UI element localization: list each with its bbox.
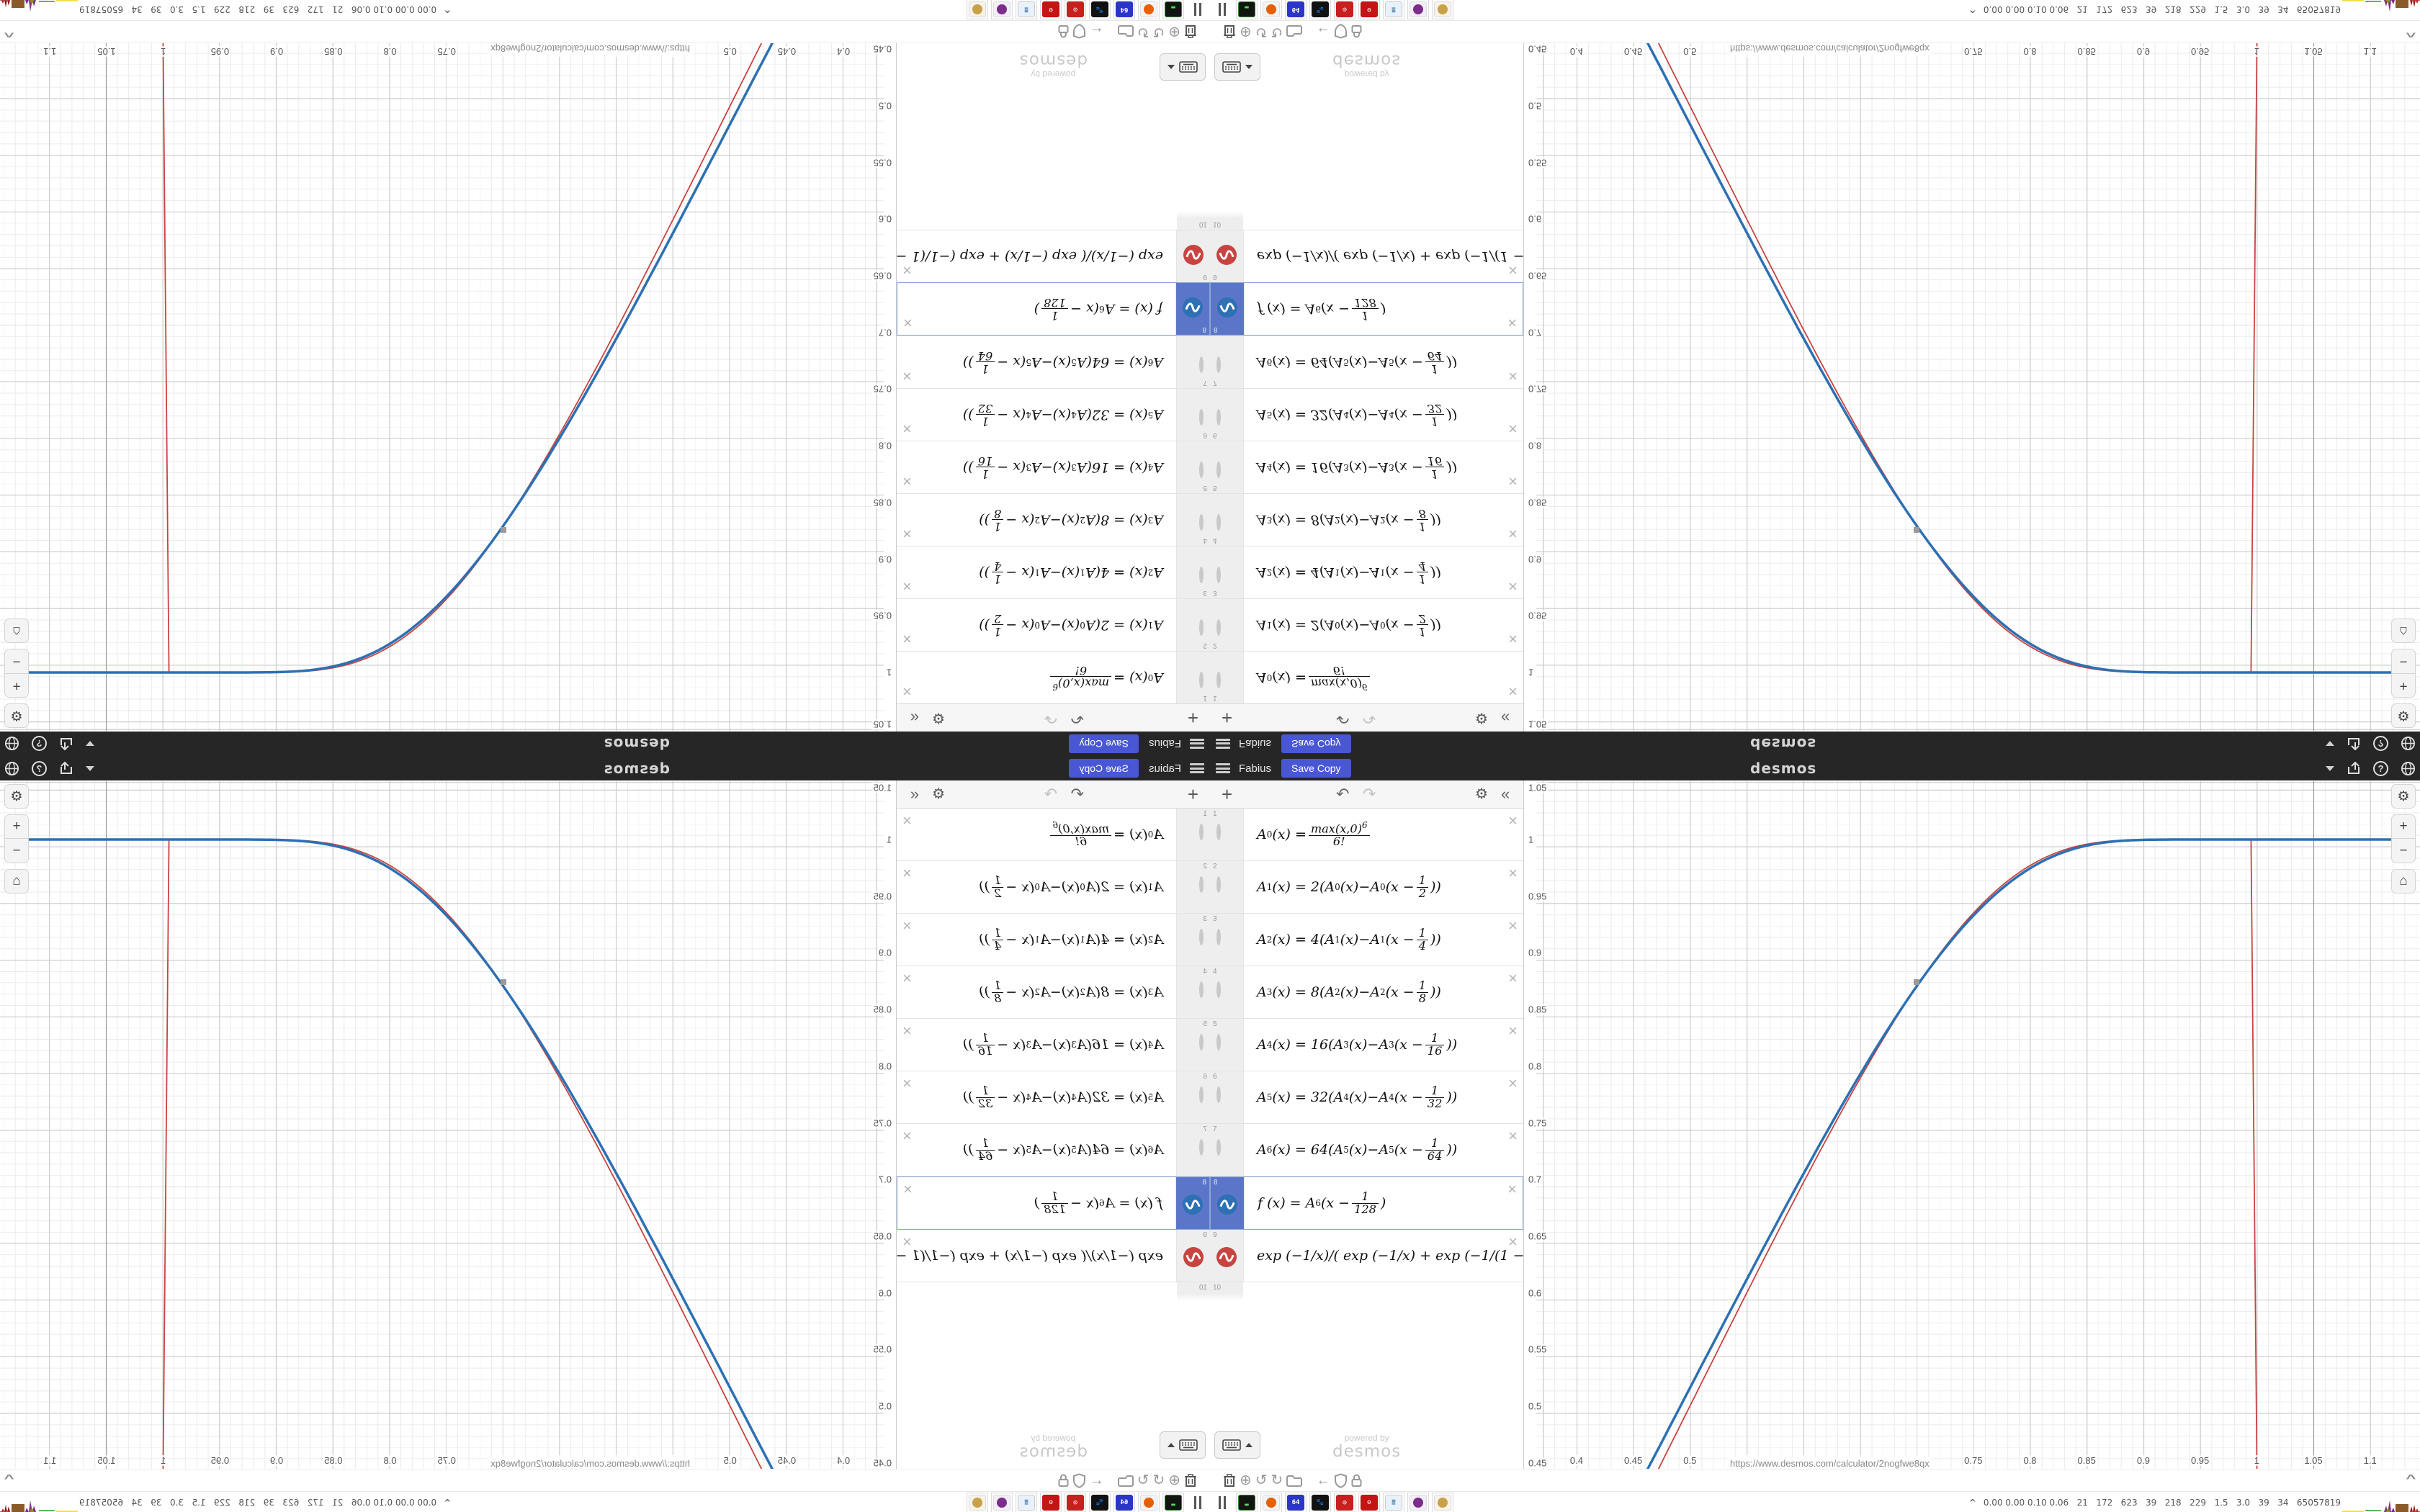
- globe-tray-icon[interactable]: ⊕: [1240, 1473, 1252, 1488]
- hidden-plot-circle-icon[interactable]: [1183, 666, 1204, 686]
- refresh-icon[interactable]: ↺: [1152, 24, 1165, 39]
- expression-gutter[interactable]: 7: [1210, 1124, 1244, 1176]
- save-copy-button[interactable]: Save Copy: [1069, 734, 1138, 753]
- hidden-plot-circle-icon[interactable]: [1183, 826, 1204, 846]
- expression-latex[interactable]: A6(x) = 64(A5(x)−A5(x − 164)): [1244, 1124, 1523, 1176]
- hidden-plot-circle-icon[interactable]: [1183, 508, 1204, 528]
- delete-expression-icon[interactable]: ×: [1508, 473, 1518, 489]
- delete-expression-icon[interactable]: ×: [902, 813, 912, 829]
- refresh-icon[interactable]: ↺: [1255, 24, 1268, 39]
- expression-latex[interactable]: A2(x) = 4(A1(x)−A1(x − 14)): [1244, 914, 1523, 966]
- app-icon-owl[interactable]: [1407, 1493, 1429, 1512]
- expression-latex[interactable]: f (x) = A6(x − 1128): [897, 283, 1175, 335]
- expression-gutter[interactable]: 4: [1176, 494, 1210, 546]
- expression-row[interactable]: 6A5(x) = 32(A4(x)−A4(x − 132))×: [1210, 1071, 1523, 1124]
- zoom-in-button[interactable]: +: [2391, 673, 2416, 698]
- app-icon-owl[interactable]: [1407, 0, 1429, 19]
- expression-latex[interactable]: A1(x) = 2(A0(x)−A0(x − 12)): [897, 599, 1176, 651]
- delete-expression-icon[interactable]: ×: [902, 262, 912, 278]
- expression-latex[interactable]: A0(x) = max(x,0)66!: [1244, 809, 1523, 860]
- expression-latex[interactable]: A5(x) = 32(A4(x)−A4(x − 132)): [897, 1071, 1176, 1123]
- zoom-in-button[interactable]: +: [4, 814, 29, 839]
- intersection-point[interactable]: [1914, 979, 1919, 985]
- undo-button[interactable]: ↶: [1336, 786, 1349, 802]
- collapse-panel-button[interactable]: «: [910, 710, 919, 726]
- expression-row[interactable]: 1A0(x) = max(x,0)66!×: [897, 651, 1210, 703]
- curve-exp-smoothstep[interactable]: [163, 43, 843, 672]
- expression-row[interactable]: 3A2(x) = 4(A1(x)−A1(x − 14))×: [897, 914, 1210, 966]
- app-icon-red-gear[interactable]: ⚙: [1040, 0, 1062, 19]
- delete-expression-icon[interactable]: ×: [1508, 526, 1518, 541]
- hidden-plot-circle-icon[interactable]: [1183, 1141, 1204, 1161]
- menu-icon[interactable]: [1190, 763, 1204, 773]
- app-icon-cat[interactable]: 🐾: [1089, 1493, 1111, 1512]
- app-icon-owl[interactable]: [991, 1493, 1013, 1512]
- graph-area[interactable]: 1.0510.950.90.850.80.750.70.650.60.550.5…: [1524, 43, 2420, 732]
- expression-row[interactable]: 3A2(x) = 4(A1(x)−A1(x − 14))×: [1210, 546, 1523, 598]
- expression-latex[interactable]: A1(x) = 2(A0(x)−A0(x − 12)): [1244, 599, 1523, 651]
- redo-button[interactable]: ↷: [1044, 786, 1057, 802]
- delete-expression-icon[interactable]: ×: [1508, 971, 1518, 986]
- hidden-plot-circle-icon[interactable]: [1216, 351, 1237, 371]
- app-icon-terminal[interactable]: ▂: [1236, 1493, 1258, 1512]
- delete-expression-icon[interactable]: ×: [902, 1128, 912, 1144]
- hidden-plot-circle-icon[interactable]: [1216, 403, 1237, 423]
- undo-button[interactable]: ↶: [1071, 786, 1084, 802]
- hidden-plot-circle-icon[interactable]: [1216, 456, 1237, 476]
- expression-row[interactable]: 8f (x) = A6(x − 1128)×: [1210, 1176, 1523, 1230]
- redo-button[interactable]: ↷: [1044, 710, 1057, 726]
- expression-gutter[interactable]: 8: [1211, 283, 1245, 335]
- hidden-plot-circle-icon[interactable]: [1216, 1141, 1237, 1161]
- help-icon[interactable]: ?: [2373, 737, 2388, 752]
- red-wave-icon[interactable]: [1216, 245, 1237, 265]
- save-copy-button[interactable]: Save Copy: [1281, 759, 1350, 778]
- curve-exp-smoothstep[interactable]: [163, 840, 843, 1469]
- delete-expression-icon[interactable]: ×: [1508, 865, 1518, 881]
- expression-row[interactable]: 4A3(x) = 8(A2(x)−A2(x − 18))×: [897, 493, 1210, 546]
- expression-latex[interactable]: A0(x) = max(x,0)66!: [897, 652, 1176, 703]
- hidden-plot-circle-icon[interactable]: [1183, 931, 1204, 951]
- delete-expression-icon[interactable]: ×: [1508, 420, 1518, 436]
- share-icon[interactable]: [58, 736, 74, 752]
- hidden-plot-circle-icon[interactable]: [1216, 931, 1237, 951]
- undo-button[interactable]: ↶: [1336, 710, 1349, 726]
- refresh-icon-2[interactable]: ↻: [1271, 1473, 1283, 1488]
- expression-latex[interactable]: A6(x) = 64(A5(x)−A5(x − 164)): [897, 336, 1176, 388]
- zoom-in-button[interactable]: +: [2391, 814, 2416, 839]
- folder-icon[interactable]: [1118, 26, 1134, 38]
- expression-row[interactable]: 5A4(x) = 16(A3(x)−A3(x − 116))×: [1210, 441, 1523, 493]
- expression-gutter[interactable]: 4: [1210, 966, 1244, 1018]
- app-icon-cat[interactable]: 🐾: [1309, 1493, 1331, 1512]
- folder-icon[interactable]: [1118, 1475, 1134, 1487]
- expression-gutter[interactable]: 8: [1175, 1177, 1209, 1229]
- app-icon-notepad[interactable]: ≣: [1383, 1493, 1404, 1512]
- expression-latex[interactable]: A2(x) = 4(A1(x)−A1(x − 14)): [897, 914, 1176, 966]
- expression-gutter[interactable]: 1: [1210, 809, 1244, 860]
- share-icon[interactable]: [2346, 736, 2362, 752]
- expression-row[interactable]: 10: [1210, 1282, 1523, 1301]
- expression-latex[interactable]: [897, 211, 1177, 230]
- expression-row[interactable]: 2A1(x) = 2(A0(x)−A0(x − 12))×: [1210, 598, 1523, 651]
- add-expression-button[interactable]: +: [1222, 708, 1232, 727]
- graph-settings-wrench-button[interactable]: ⚙: [4, 784, 29, 809]
- share-icon[interactable]: [58, 760, 74, 776]
- expression-row[interactable]: 6A5(x) = 32(A4(x)−A4(x − 132))×: [897, 1071, 1210, 1124]
- app-icon-red-emblem[interactable]: ◎: [1334, 0, 1355, 19]
- redo-button[interactable]: ↷: [1363, 786, 1376, 802]
- expression-latex[interactable]: A6(x) = 64(A5(x)−A5(x − 164)): [1244, 336, 1523, 388]
- refresh-icon-2[interactable]: ↻: [1137, 1473, 1149, 1488]
- chevron-up-icon[interactable]: ^: [2406, 27, 2416, 40]
- refresh-icon[interactable]: ↺: [1255, 1473, 1268, 1488]
- app-icon-red-emblem[interactable]: ◎: [1065, 0, 1086, 19]
- expression-row[interactable]: 2A1(x) = 2(A0(x)−A0(x − 12))×: [897, 861, 1210, 914]
- trash-icon[interactable]: [1184, 24, 1197, 39]
- app-icon-palette[interactable]: [967, 0, 988, 19]
- menu-icon[interactable]: [1190, 739, 1204, 749]
- app-icon-terminal[interactable]: ▂: [1162, 1493, 1184, 1512]
- redo-button[interactable]: ↷: [1363, 710, 1376, 726]
- expression-row[interactable]: 10: [897, 1282, 1210, 1301]
- edit-list-gear-icon[interactable]: ⚙: [1475, 787, 1488, 801]
- delete-expression-icon[interactable]: ×: [1508, 1076, 1518, 1092]
- collapse-panel-button[interactable]: «: [910, 786, 919, 802]
- add-expression-button[interactable]: +: [1188, 785, 1198, 804]
- expression-row[interactable]: 10: [1210, 211, 1523, 230]
- delete-expression-icon[interactable]: ×: [902, 683, 912, 699]
- expression-gutter[interactable]: 3: [1176, 546, 1210, 598]
- app-icon-firefox[interactable]: [1138, 1493, 1160, 1512]
- delete-expression-icon[interactable]: ×: [902, 971, 912, 986]
- expression-gutter[interactable]: 9: [1210, 1230, 1244, 1282]
- expression-latex[interactable]: A4(x) = 16(A3(x)−A3(x − 116)): [897, 1019, 1176, 1071]
- expression-gutter[interactable]: 6: [1176, 389, 1210, 441]
- drag-handle-icon[interactable]: [1219, 1496, 1226, 1509]
- expression-gutter[interactable]: 3: [1176, 914, 1210, 966]
- trash-icon[interactable]: [1223, 24, 1236, 39]
- expression-gutter[interactable]: 8: [1211, 1177, 1245, 1229]
- back-arrow-icon[interactable]: ←: [1316, 24, 1330, 39]
- hidden-plot-circle-icon[interactable]: [1183, 1036, 1204, 1056]
- back-arrow-icon[interactable]: ←: [1316, 1473, 1330, 1488]
- app-icon-notepad[interactable]: ≣: [1016, 0, 1037, 19]
- expression-row[interactable]: 7A6(x) = 64(A5(x)−A5(x − 164))×: [897, 1124, 1210, 1176]
- hidden-plot-circle-icon[interactable]: [1183, 1089, 1204, 1109]
- delete-expression-icon[interactable]: ×: [902, 420, 912, 436]
- delete-expression-icon[interactable]: ×: [902, 1023, 912, 1039]
- back-arrow-icon[interactable]: ←: [1090, 1473, 1104, 1488]
- globe-icon[interactable]: [2400, 760, 2416, 776]
- delete-expression-icon[interactable]: ×: [1508, 368, 1518, 384]
- blue-wave-icon[interactable]: [1183, 297, 1203, 318]
- hidden-plot-circle-icon[interactable]: [1216, 984, 1237, 1004]
- home-button[interactable]: ⌂: [4, 618, 29, 643]
- expression-latex[interactable]: exp (−1/x)/( exp (−1/x) + exp (−1/(1 − x…: [897, 1230, 1176, 1282]
- app-icon-palette[interactable]: [1432, 1493, 1453, 1512]
- home-button[interactable]: ⌂: [4, 869, 29, 894]
- expression-latex[interactable]: A3(x) = 8(A2(x)−A2(x − 18)): [897, 494, 1176, 546]
- app-icon-red-emblem[interactable]: ◎: [1334, 1493, 1355, 1512]
- expression-row[interactable]: 8f (x) = A6(x − 1128)×: [897, 1176, 1210, 1230]
- expression-row[interactable]: 9exp (−1/x)/( exp (−1/x) + exp (−1/(1 − …: [1210, 230, 1523, 282]
- app-icon-red-gear[interactable]: ⚙: [1040, 1493, 1062, 1512]
- expression-latex[interactable]: A3(x) = 8(A2(x)−A2(x − 18)): [1244, 966, 1523, 1018]
- expression-latex[interactable]: A1(x) = 2(A0(x)−A0(x − 12)): [897, 861, 1176, 913]
- expression-gutter[interactable]: 1: [1176, 652, 1210, 703]
- blue-wave-icon[interactable]: [1183, 1194, 1203, 1215]
- expression-latex[interactable]: A4(x) = 16(A3(x)−A3(x − 116)): [897, 441, 1176, 493]
- home-button[interactable]: ⌂: [2391, 869, 2416, 894]
- expression-row[interactable]: 5A4(x) = 16(A3(x)−A3(x − 116))×: [1210, 1019, 1523, 1071]
- app-icon-terminal[interactable]: ▂: [1162, 0, 1184, 19]
- expression-gutter[interactable]: 6: [1176, 1071, 1210, 1123]
- hidden-plot-circle-icon[interactable]: [1216, 666, 1237, 686]
- expression-latex[interactable]: exp (−1/x)/( exp (−1/x) + exp (−1/(1 − x…: [1244, 1230, 1523, 1282]
- expression-latex[interactable]: [1243, 211, 1523, 230]
- keyboard-toggle-button[interactable]: [1160, 1431, 1206, 1459]
- hidden-plot-circle-icon[interactable]: [1216, 508, 1237, 528]
- app-icon-owl[interactable]: [991, 0, 1013, 19]
- expression-row[interactable]: 9exp (−1/x)/( exp (−1/x) + exp (−1/(1 − …: [1210, 1230, 1523, 1282]
- app-icon-notepad[interactable]: ≣: [1016, 1493, 1037, 1512]
- hidden-plot-circle-icon[interactable]: [1216, 826, 1237, 846]
- expression-latex[interactable]: f (x) = A6(x − 1128): [897, 1177, 1175, 1229]
- zoom-in-button[interactable]: +: [4, 673, 29, 698]
- drag-handle-icon[interactable]: [1219, 3, 1226, 16]
- graph-area[interactable]: 1.0510.950.90.850.80.750.70.650.60.550.5…: [0, 780, 896, 1469]
- globe-tray-icon[interactable]: ⊕: [1240, 24, 1252, 39]
- graph-settings-wrench-button[interactable]: ⚙: [4, 703, 29, 728]
- globe-icon[interactable]: [4, 760, 20, 776]
- chevron-down-icon[interactable]: [86, 766, 94, 771]
- save-copy-button[interactable]: Save Copy: [1281, 734, 1350, 753]
- delete-expression-icon[interactable]: ×: [902, 1076, 912, 1092]
- trash-icon[interactable]: [1223, 1473, 1236, 1488]
- folder-icon[interactable]: [1286, 1475, 1302, 1487]
- expression-row[interactable]: 5A4(x) = 16(A3(x)−A3(x − 116))×: [897, 441, 1210, 493]
- zoom-out-button[interactable]: −: [2391, 839, 2416, 863]
- app-icon-firefox[interactable]: [1260, 1493, 1282, 1512]
- share-icon[interactable]: [2346, 760, 2362, 776]
- hidden-plot-circle-icon[interactable]: [1183, 403, 1204, 423]
- app-icon-floppy-64[interactable]: 64: [1285, 1493, 1307, 1512]
- expression-gutter[interactable]: 8: [1175, 283, 1209, 335]
- hidden-plot-circle-icon[interactable]: [1216, 878, 1237, 899]
- expression-gutter[interactable]: 7: [1210, 336, 1244, 388]
- expression-latex[interactable]: f (x) = A6(x − 1128): [1245, 1177, 1523, 1229]
- zoom-out-button[interactable]: −: [2391, 649, 2416, 673]
- delete-expression-icon[interactable]: ×: [1508, 683, 1518, 699]
- curve-fabius-f[interactable]: [4, 840, 843, 1469]
- keyboard-toggle-button[interactable]: [1214, 53, 1260, 81]
- expression-row[interactable]: 4A3(x) = 8(A2(x)−A2(x − 18))×: [1210, 493, 1523, 546]
- globe-tray-icon[interactable]: ⊕: [1168, 1473, 1180, 1488]
- delete-expression-icon[interactable]: ×: [902, 526, 912, 541]
- expression-gutter[interactable]: 2: [1210, 861, 1244, 913]
- undo-button[interactable]: ↶: [1071, 710, 1084, 726]
- expression-row[interactable]: 3A2(x) = 4(A1(x)−A1(x − 14))×: [897, 546, 1210, 598]
- delete-expression-icon[interactable]: ×: [1508, 631, 1518, 647]
- help-icon[interactable]: ?: [32, 761, 47, 776]
- expression-row[interactable]: 3A2(x) = 4(A1(x)−A1(x − 14))×: [1210, 914, 1523, 966]
- hidden-plot-circle-icon[interactable]: [1183, 456, 1204, 476]
- expression-gutter[interactable]: 5: [1176, 441, 1210, 493]
- delete-expression-icon[interactable]: ×: [902, 631, 912, 647]
- expression-latex[interactable]: A5(x) = 32(A4(x)−A4(x − 132)): [1244, 1071, 1523, 1123]
- delete-expression-icon[interactable]: ×: [902, 865, 912, 881]
- expression-gutter[interactable]: 5: [1176, 1019, 1210, 1071]
- app-icon-firefox[interactable]: [1138, 0, 1160, 19]
- expression-gutter[interactable]: 9: [1176, 1230, 1210, 1282]
- intersection-point[interactable]: [501, 527, 506, 533]
- add-expression-button[interactable]: +: [1188, 708, 1198, 727]
- graph-area[interactable]: 1.0510.950.90.850.80.750.70.650.60.550.5…: [0, 43, 896, 732]
- expression-gutter[interactable]: 7: [1176, 336, 1210, 388]
- expression-gutter[interactable]: 6: [1210, 1071, 1244, 1123]
- intersection-point[interactable]: [1914, 527, 1919, 533]
- delete-expression-icon[interactable]: ×: [903, 1182, 913, 1197]
- expression-gutter[interactable]: 3: [1210, 914, 1244, 966]
- expression-gutter[interactable]: 10: [1210, 1282, 1243, 1301]
- app-icon-floppy-64[interactable]: 64: [1113, 0, 1135, 19]
- expression-gutter[interactable]: 4: [1210, 494, 1244, 546]
- chevron-up-icon[interactable]: ^: [4, 27, 14, 40]
- delete-expression-icon[interactable]: ×: [902, 1234, 912, 1250]
- expression-row[interactable]: 6A5(x) = 32(A4(x)−A4(x − 132))×: [1210, 388, 1523, 441]
- expression-latex[interactable]: A5(x) = 32(A4(x)−A4(x − 132)): [1244, 389, 1523, 441]
- expression-gutter[interactable]: 4: [1176, 966, 1210, 1018]
- delete-expression-icon[interactable]: ×: [1508, 578, 1518, 594]
- globe-icon[interactable]: [2400, 736, 2416, 752]
- expression-latex[interactable]: A0(x) = max(x,0)66!: [897, 809, 1176, 860]
- hidden-plot-circle-icon[interactable]: [1216, 613, 1237, 634]
- expression-gutter[interactable]: 5: [1210, 441, 1244, 493]
- edit-list-gear-icon[interactable]: ⚙: [932, 711, 945, 725]
- hidden-plot-circle-icon[interactable]: [1183, 561, 1204, 581]
- intersection-point[interactable]: [501, 979, 506, 985]
- app-icon-palette[interactable]: [1432, 0, 1453, 19]
- curve-fabius-f[interactable]: [1577, 840, 2416, 1469]
- expression-latex[interactable]: A0(x) = max(x,0)66!: [1244, 652, 1523, 703]
- app-icon-floppy-64[interactable]: 64: [1113, 1493, 1135, 1512]
- delete-expression-icon[interactable]: ×: [1508, 1234, 1518, 1250]
- curve-fabius-f[interactable]: [1577, 43, 2416, 672]
- delete-expression-icon[interactable]: ×: [1508, 1023, 1518, 1039]
- app-icon-firefox[interactable]: [1260, 0, 1282, 19]
- keyboard-toggle-button[interactable]: [1214, 1431, 1260, 1459]
- back-arrow-icon[interactable]: ←: [1090, 24, 1104, 39]
- edit-list-gear-icon[interactable]: ⚙: [932, 787, 945, 801]
- delete-expression-icon[interactable]: ×: [902, 368, 912, 384]
- hidden-plot-circle-icon[interactable]: [1216, 1089, 1237, 1109]
- hidden-plot-circle-icon[interactable]: [1183, 613, 1204, 634]
- expression-latex[interactable]: [897, 1282, 1177, 1301]
- drag-handle-icon[interactable]: [1194, 1496, 1201, 1509]
- expression-gutter[interactable]: 9: [1176, 230, 1210, 282]
- expression-latex[interactable]: [1243, 1282, 1523, 1301]
- expression-row[interactable]: 5A4(x) = 16(A3(x)−A3(x − 116))×: [897, 1019, 1210, 1071]
- expression-latex[interactable]: A4(x) = 16(A3(x)−A3(x − 116)): [1244, 441, 1523, 493]
- add-expression-button[interactable]: +: [1222, 785, 1232, 804]
- collapse-panel-button[interactable]: «: [1501, 710, 1510, 726]
- zoom-out-button[interactable]: −: [4, 649, 29, 673]
- home-button[interactable]: ⌂: [2391, 618, 2416, 643]
- expression-latex[interactable]: A4(x) = 16(A3(x)−A3(x − 116)): [1244, 1019, 1523, 1071]
- edit-list-gear-icon[interactable]: ⚙: [1475, 711, 1488, 725]
- save-copy-button[interactable]: Save Copy: [1069, 759, 1138, 778]
- curve-exp-smoothstep[interactable]: [1577, 43, 2257, 672]
- drag-handle-icon[interactable]: [1194, 3, 1201, 16]
- app-icon-cat[interactable]: 🐾: [1309, 0, 1331, 19]
- expression-latex[interactable]: A1(x) = 2(A0(x)−A0(x − 12)): [1244, 861, 1523, 913]
- zoom-out-button[interactable]: −: [4, 839, 29, 863]
- curve-exp-smoothstep[interactable]: [1577, 840, 2257, 1469]
- red-wave-icon[interactable]: [1216, 1247, 1237, 1267]
- trash-icon[interactable]: [1184, 1473, 1197, 1488]
- expression-latex[interactable]: exp (−1/x)/( exp (−1/x) + exp (−1/(1 − x…: [1244, 230, 1523, 282]
- collapse-panel-button[interactable]: «: [1501, 786, 1510, 802]
- expression-latex[interactable]: A5(x) = 32(A4(x)−A4(x − 132)): [897, 389, 1176, 441]
- expression-latex[interactable]: exp (−1/x)/( exp (−1/x) + exp (−1/(1 − x…: [897, 230, 1176, 282]
- delete-expression-icon[interactable]: ×: [902, 918, 912, 934]
- expression-gutter[interactable]: 2: [1176, 861, 1210, 913]
- folder-icon[interactable]: [1286, 26, 1302, 38]
- delete-expression-icon[interactable]: ×: [1507, 1182, 1517, 1197]
- graph-settings-wrench-button[interactable]: ⚙: [2391, 703, 2416, 728]
- app-icon-red-gear[interactable]: ⚙: [1358, 0, 1380, 19]
- expression-row[interactable]: 6A5(x) = 32(A4(x)−A4(x − 132))×: [897, 388, 1210, 441]
- hidden-plot-circle-icon[interactable]: [1216, 561, 1237, 581]
- hidden-plot-circle-icon[interactable]: [1183, 984, 1204, 1004]
- expression-gutter[interactable]: 10: [1177, 1282, 1210, 1301]
- help-icon[interactable]: ?: [32, 737, 47, 752]
- expression-latex[interactable]: f (x) = A6(x − 1128): [1245, 283, 1523, 335]
- menu-icon[interactable]: [1216, 763, 1230, 773]
- expression-latex[interactable]: A3(x) = 8(A2(x)−A2(x − 18)): [1244, 494, 1523, 546]
- chevron-down-icon[interactable]: [2326, 766, 2334, 771]
- expression-gutter[interactable]: 10: [1177, 211, 1210, 230]
- graph-area[interactable]: 1.0510.950.90.850.80.750.70.650.60.550.5…: [1524, 780, 2420, 1469]
- delete-expression-icon[interactable]: ×: [902, 578, 912, 594]
- expression-latex[interactable]: A6(x) = 64(A5(x)−A5(x − 164)): [897, 1124, 1176, 1176]
- app-icon-cat[interactable]: 🐾: [1089, 0, 1111, 19]
- app-icon-palette[interactable]: [967, 1493, 988, 1512]
- chevron-down-icon[interactable]: [86, 742, 94, 747]
- expression-row[interactable]: 1A0(x) = max(x,0)66!×: [897, 809, 1210, 861]
- expression-row[interactable]: 1A0(x) = max(x,0)66!×: [1210, 809, 1523, 861]
- expression-gutter[interactable]: 10: [1210, 211, 1243, 230]
- expression-row[interactable]: 7A6(x) = 64(A5(x)−A5(x − 164))×: [897, 336, 1210, 388]
- graph-settings-wrench-button[interactable]: ⚙: [2391, 784, 2416, 809]
- expression-row[interactable]: 10: [897, 211, 1210, 230]
- expression-row[interactable]: 2A1(x) = 2(A0(x)−A0(x − 12))×: [1210, 861, 1523, 914]
- expression-row[interactable]: 8f (x) = A6(x − 1128)×: [1210, 282, 1523, 336]
- chevron-down-icon[interactable]: [2326, 742, 2334, 747]
- red-wave-icon[interactable]: [1183, 245, 1204, 265]
- chevron-up-icon[interactable]: ^: [4, 1472, 14, 1485]
- blue-wave-icon[interactable]: [1217, 1194, 1237, 1215]
- delete-expression-icon[interactable]: ×: [1508, 813, 1518, 829]
- delete-expression-icon[interactable]: ×: [1508, 262, 1518, 278]
- expression-gutter[interactable]: 2: [1176, 599, 1210, 651]
- expression-row[interactable]: 7A6(x) = 64(A5(x)−A5(x − 164))×: [1210, 336, 1523, 388]
- expression-gutter[interactable]: 2: [1210, 599, 1244, 651]
- app-icon-floppy-64[interactable]: 64: [1285, 0, 1307, 19]
- globe-tray-icon[interactable]: ⊕: [1168, 24, 1180, 39]
- expression-row[interactable]: 9exp (−1/x)/( exp (−1/x) + exp (−1/(1 − …: [897, 230, 1210, 282]
